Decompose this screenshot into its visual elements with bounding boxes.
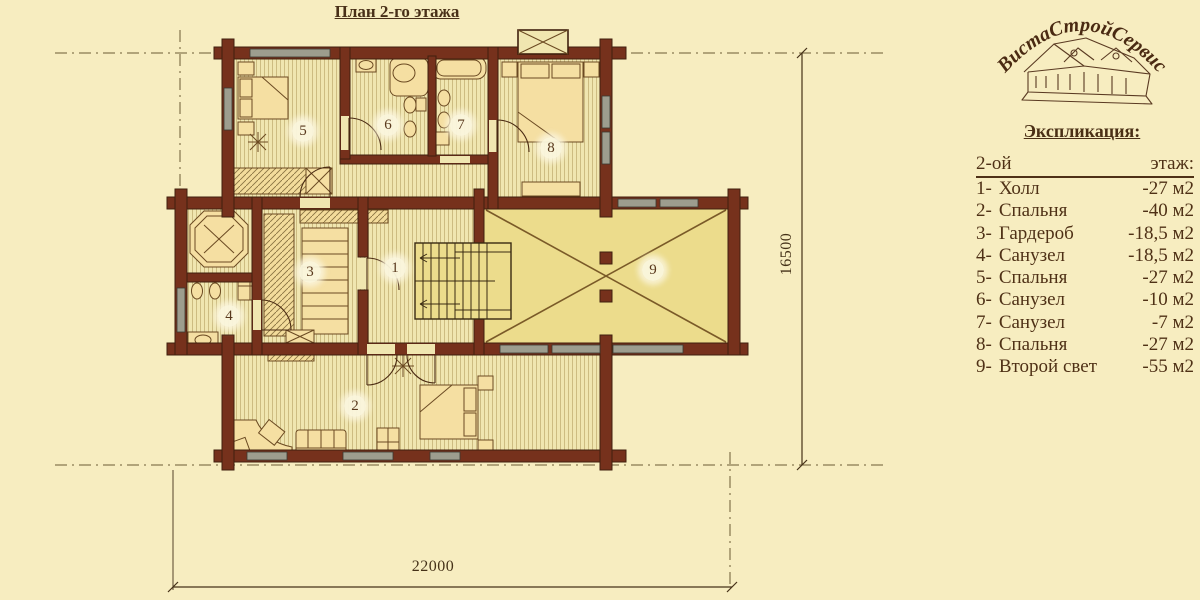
room-badge-1: 1 — [384, 257, 406, 279]
room-badge-5: 5 — [292, 120, 314, 142]
room-badge-7: 7 — [450, 114, 472, 136]
legend-row: 9-Второй свет -55 м2 — [976, 356, 1194, 378]
legend-list: 2-ой этаж: 1-Холл -27 м2 2-Спальня -40 м… — [966, 153, 1198, 379]
closet-icon — [230, 168, 332, 194]
chimney-icon — [518, 30, 568, 54]
room-area: -27 м2 — [1142, 178, 1194, 200]
room-number: 7- — [976, 312, 992, 334]
legend-row: 1-Холл -27 м2 — [976, 178, 1194, 200]
corner-bathtub-icon — [390, 58, 428, 96]
room-name: Спальня — [999, 267, 1068, 289]
room-area: -10 м2 — [1142, 289, 1194, 311]
room-area: -18,5 м2 — [1128, 245, 1194, 267]
room-name: Второй свет — [999, 356, 1097, 378]
room-name: Спальня — [999, 334, 1068, 356]
room-name: Санузел — [999, 289, 1065, 311]
room-name: Холл — [999, 178, 1040, 200]
room-area: -55 м2 — [1142, 356, 1194, 378]
legend-row: 3-Гардероб -18,5 м2 — [976, 223, 1194, 245]
floor-plan-drawing — [0, 0, 940, 600]
room-badge-6: 6 — [377, 114, 399, 136]
room-number: 9- — [976, 356, 992, 378]
sheet-title: План 2-го этажа — [287, 2, 507, 22]
room-number: 3- — [976, 223, 992, 245]
room-area: -40 м2 — [1142, 200, 1194, 222]
room-number: 2- — [976, 200, 992, 222]
room-area: -27 м2 — [1142, 267, 1194, 289]
room-badge-8: 8 — [540, 137, 562, 159]
room-number: 4- — [976, 245, 992, 267]
room-number: 1- — [976, 178, 992, 200]
staircase-icon — [415, 243, 511, 319]
room-number: 6- — [976, 289, 992, 311]
floor-plan-sheet: План 2-го этажа 22000 16500 1 2 3 4 5 6 … — [0, 0, 1200, 600]
legend-row: 5-Спальня -27 м2 — [976, 267, 1194, 289]
double-height-void — [480, 207, 730, 345]
width-dimension-label: 22000 — [388, 558, 478, 576]
room-badge-9: 9 — [642, 259, 664, 281]
room-badge-4: 4 — [218, 305, 240, 327]
room-name: Санузел — [999, 245, 1065, 267]
room-area: -7 м2 — [1152, 312, 1194, 334]
legend-row: 2-Спальня -40 м2 — [976, 200, 1194, 222]
legend-row: 7-Санузел -7 м2 — [976, 312, 1194, 334]
height-dimension-label: 16500 — [778, 209, 796, 299]
legend-row: 6-Санузел -10 м2 — [976, 289, 1194, 311]
legend-title: Экспликация: — [966, 121, 1198, 142]
legend-row: 8-Спальня -27 м2 — [976, 334, 1194, 356]
room-name: Гардероб — [999, 223, 1074, 245]
room-badge-3: 3 — [299, 261, 321, 283]
jacuzzi-icon — [190, 211, 248, 267]
room-name: Санузел — [999, 312, 1065, 334]
legend-panel: ВистаСтройСервис Экспликация: 2-ой этаж: — [966, 0, 1198, 379]
legend-floor-right: этаж: — [1150, 153, 1194, 175]
sink-icon — [356, 58, 376, 72]
room-number: 5- — [976, 267, 992, 289]
room-area: -27 м2 — [1142, 334, 1194, 356]
room-badge-2: 2 — [344, 395, 366, 417]
room-number: 8- — [976, 334, 992, 356]
plant-icon — [248, 132, 268, 152]
legend-floor-left: 2-ой — [976, 153, 1012, 175]
legend-floor-header: 2-ой этаж: — [976, 153, 1194, 178]
room-name: Спальня — [999, 200, 1068, 222]
room-area: -18,5 м2 — [1128, 223, 1194, 245]
company-logo: ВистаСтройСервис — [966, 0, 1198, 112]
legend-row: 4-Санузел -18,5 м2 — [976, 245, 1194, 267]
